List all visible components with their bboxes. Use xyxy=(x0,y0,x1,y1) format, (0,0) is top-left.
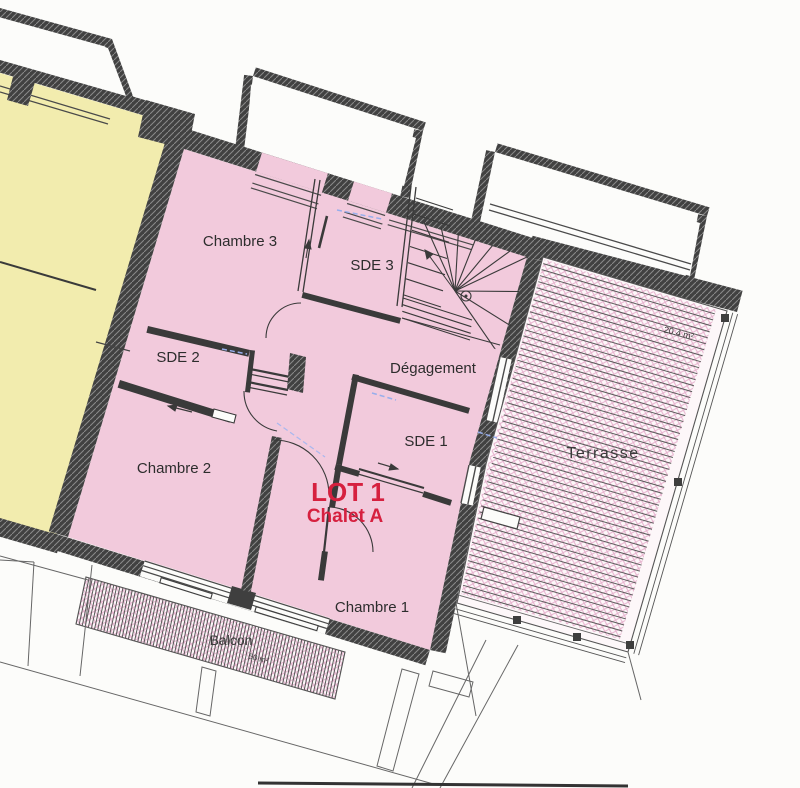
svg-text:Dégagement: Dégagement xyxy=(390,360,477,377)
svg-text:SDE 2: SDE 2 xyxy=(156,349,199,366)
svg-text:SDE 1: SDE 1 xyxy=(404,433,447,450)
svg-text:Chambre 1: Chambre 1 xyxy=(335,599,409,616)
svg-text:LOT 1: LOT 1 xyxy=(311,477,385,507)
svg-text:Chambre 3: Chambre 3 xyxy=(203,233,277,250)
svg-text:Chambre 2: Chambre 2 xyxy=(137,460,211,477)
svg-text:Terrasse: Terrasse xyxy=(566,445,639,462)
svg-text:Chalet A: Chalet A xyxy=(307,506,384,527)
svg-text:Balcon: Balcon xyxy=(210,632,253,648)
svg-text:SDE 3: SDE 3 xyxy=(350,257,393,274)
